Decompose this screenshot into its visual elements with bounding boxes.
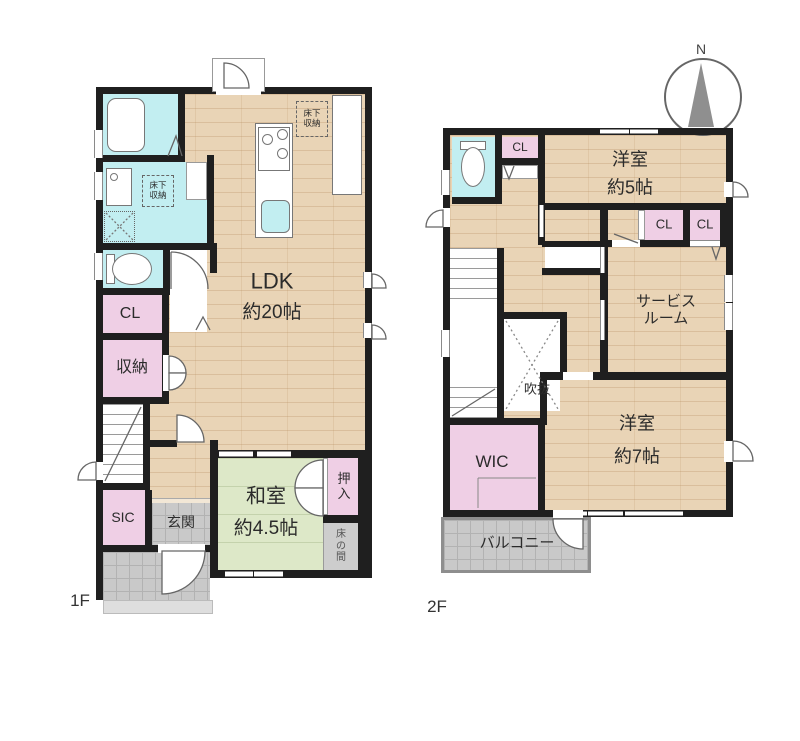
washer-pan — [104, 211, 135, 242]
wall-segment — [103, 155, 185, 162]
wall-segment — [96, 397, 169, 404]
stairs-2f-lower — [450, 387, 497, 418]
door-gap — [724, 182, 733, 197]
wall-segment — [210, 440, 218, 578]
wall-segment — [545, 203, 733, 210]
label-oshiire: 押入 — [337, 472, 351, 502]
door-arc — [733, 441, 753, 461]
wall-segment — [540, 372, 563, 380]
window — [94, 253, 103, 280]
door-track — [690, 240, 720, 247]
door-gap — [563, 372, 593, 380]
sliding-opening — [600, 247, 605, 273]
kitchen-sink — [261, 200, 290, 233]
window — [94, 172, 103, 200]
window — [94, 130, 103, 158]
label-closet-a: CL — [656, 218, 673, 233]
door-gap — [94, 462, 103, 480]
window — [588, 511, 623, 516]
shoji-opening — [257, 451, 291, 457]
wall-segment — [96, 87, 103, 600]
label-bedroom7: 洋室 — [619, 414, 655, 435]
label-washitsu-size: 約4.5帖 — [234, 518, 298, 540]
wall-segment — [103, 243, 214, 250]
wall-segment — [443, 418, 547, 425]
balcony-door-gap — [553, 510, 583, 518]
label-bedroom5: 洋室 — [612, 150, 648, 171]
door-arc — [733, 182, 748, 197]
window-arc — [372, 325, 386, 339]
wall-segment — [542, 241, 603, 247]
label-sic: SIC — [111, 509, 134, 525]
label-bedroom7-size: 約7帖 — [614, 447, 660, 468]
wall-segment — [560, 312, 567, 380]
door-gap — [612, 240, 640, 247]
window — [724, 303, 733, 330]
window — [254, 571, 283, 577]
kitchen-counter — [332, 95, 362, 195]
label-void: 吹抜 — [524, 383, 550, 398]
underfloor-storage-box: 床下収納 — [296, 101, 328, 137]
window — [363, 272, 372, 288]
wall-segment — [593, 372, 733, 380]
sliding-door — [186, 162, 207, 200]
wall-segment — [600, 210, 608, 380]
window-arc — [372, 274, 386, 288]
label-floor1: 1F — [70, 591, 90, 611]
label-balcony: バルコニー — [480, 534, 555, 551]
oshiire-door-track — [323, 458, 328, 515]
compass-needle-icon — [688, 63, 714, 127]
wall-segment — [542, 268, 603, 275]
wall-segment — [145, 490, 152, 552]
door-gap — [441, 208, 450, 227]
wall-segment — [497, 248, 504, 418]
toilet-bowl-2f — [461, 147, 485, 187]
wall-segment — [143, 404, 150, 490]
label-washitsu: 和室 — [246, 486, 286, 509]
wall-segment — [358, 450, 365, 578]
wall-segment — [210, 243, 217, 273]
burner — [277, 129, 288, 140]
wall-segment — [143, 440, 177, 447]
toilet-bowl-1f — [112, 253, 152, 285]
window — [441, 330, 450, 357]
sliding-opening — [600, 300, 605, 340]
wall-segment — [323, 515, 365, 523]
label-floor2: 2F — [427, 597, 447, 617]
hall-corridor-1f — [170, 250, 207, 332]
underfloor-storage-label: 床下収納 — [302, 109, 322, 129]
porch-step — [103, 600, 213, 614]
north-label: N — [696, 41, 706, 57]
label-wic: WIC — [475, 452, 508, 472]
wall-segment — [538, 418, 545, 517]
window — [630, 129, 658, 134]
window — [724, 275, 733, 302]
label-bedroom5-size: 約5帖 — [607, 178, 653, 199]
wall-segment — [103, 333, 169, 340]
label-service-room: サービスルーム — [633, 293, 699, 328]
window — [625, 511, 683, 516]
wall-segment — [178, 94, 185, 162]
double-door-gap — [163, 355, 169, 391]
label-closet-1f: CL — [120, 305, 140, 323]
stairs-2f-upper — [450, 248, 497, 305]
door-gap — [216, 86, 261, 95]
burner — [277, 148, 288, 159]
bathtub — [107, 98, 145, 152]
label-genkan: 玄関 — [167, 514, 195, 530]
genkan-step-edge — [152, 498, 210, 503]
floor-plan: 床下収納 床下収納 LDK 約20帖 CL 収納 SIC 玄関 和室 約4.5帖… — [0, 0, 800, 741]
label-tokonoma: 床の間 — [336, 529, 347, 564]
door-gap — [724, 441, 733, 462]
room-washitsu — [215, 458, 323, 570]
underfloor-storage-label: 床下収納 — [148, 181, 168, 201]
faucet-knob — [110, 173, 118, 181]
window — [363, 323, 372, 338]
stairs-2f-landing — [450, 305, 497, 387]
wall-segment — [495, 135, 502, 204]
wall-segment — [497, 312, 567, 319]
label-closet-b: CL — [697, 218, 714, 233]
void-notch — [545, 247, 600, 268]
label-closet-hall: CL — [512, 141, 527, 155]
wall-segment — [207, 155, 214, 250]
wall-segment — [96, 483, 150, 490]
porch — [103, 552, 210, 600]
label-ldk-size: 約20帖 — [242, 302, 301, 324]
window — [441, 170, 450, 195]
burner — [262, 134, 273, 145]
stairs-1f — [103, 404, 143, 483]
closet-a-door-track — [638, 210, 645, 240]
window — [225, 571, 253, 577]
label-ldk: LDK — [251, 268, 294, 293]
underfloor-storage-box: 床下収納 — [142, 175, 174, 207]
wall-segment — [103, 288, 170, 295]
closet-hall-door — [502, 165, 538, 179]
sliding-opening — [539, 205, 544, 237]
wall-segment — [452, 197, 502, 204]
wall-segment — [443, 128, 733, 135]
label-storage-1f: 収納 — [116, 359, 148, 377]
entrance-door-gap — [158, 544, 205, 553]
window — [600, 129, 629, 134]
shoji-opening — [219, 451, 253, 457]
